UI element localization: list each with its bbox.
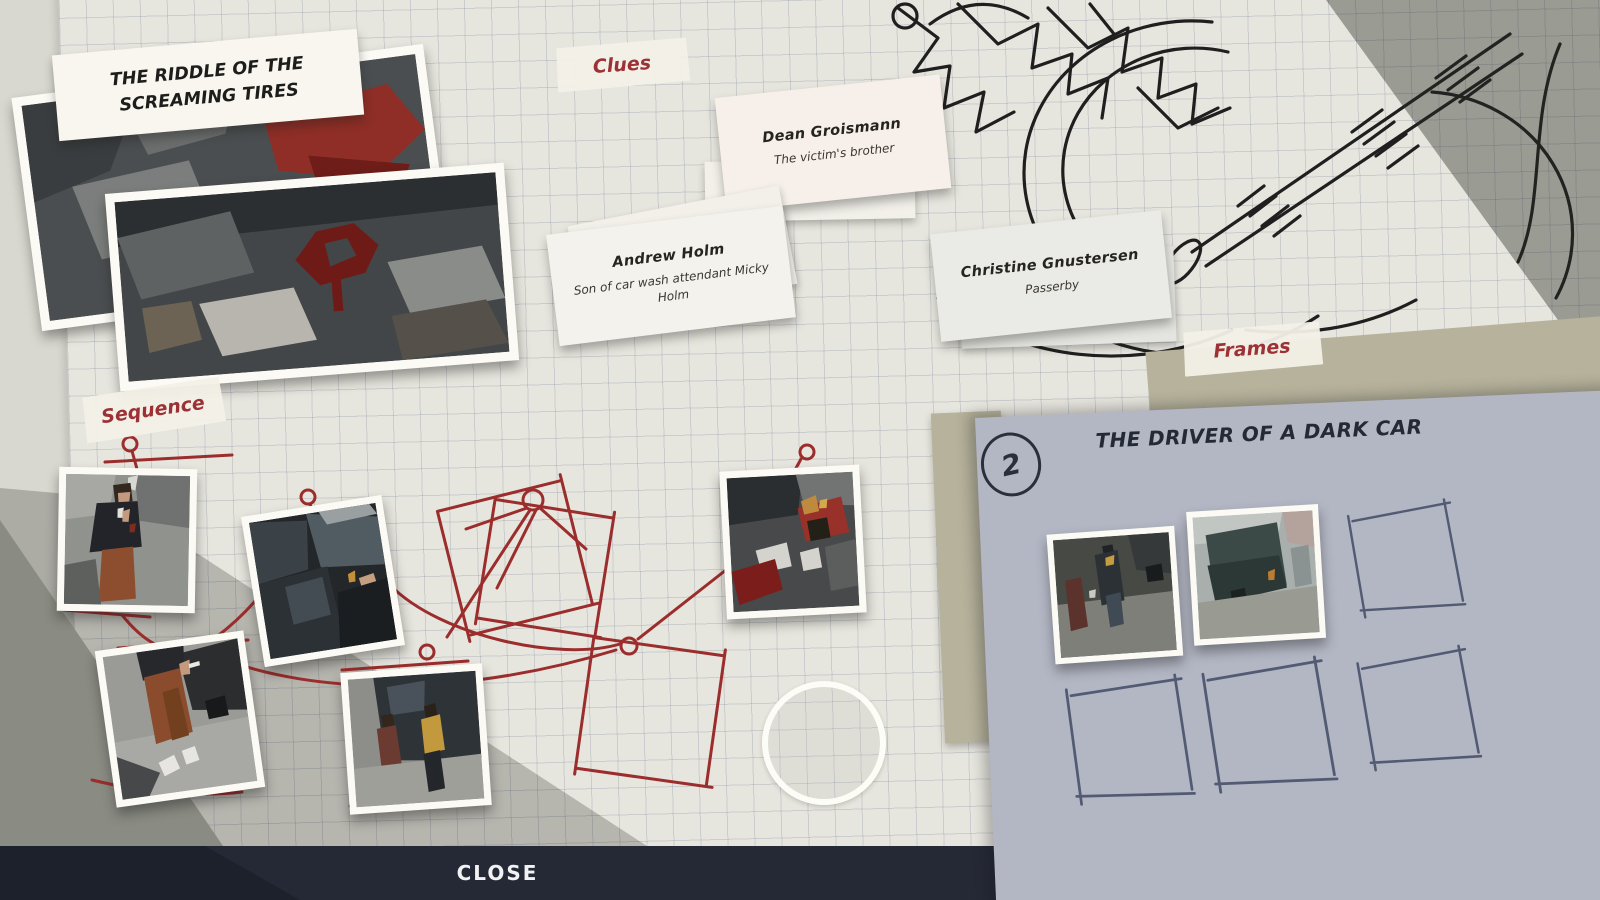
frame-photo-dark-van[interactable]: [1186, 504, 1326, 646]
case-title: THE RIDDLE OF THE SCREAMING TIRES: [53, 46, 362, 125]
sequence-photo-van-people[interactable]: [340, 663, 492, 815]
frames-panel: 2 THE DRIVER OF A DARK CAR: [975, 387, 1600, 900]
frame-empty-slot-2[interactable]: [1061, 670, 1197, 809]
sequence-photo-4-art: [348, 671, 485, 808]
photo-evidence-mark-art: [115, 172, 510, 381]
sequence-photo-5-art: [727, 472, 860, 612]
clue-card-role: Passerby: [1024, 277, 1080, 299]
clue-card-role: The victim's brother: [773, 140, 895, 169]
sequence-photo-legs[interactable]: [95, 630, 266, 807]
sequence-photo-man-smoking[interactable]: [57, 467, 197, 613]
frame-empty-slot-1[interactable]: [1343, 493, 1468, 623]
frame-number-badge: 2: [975, 427, 1047, 502]
sequence-photo-1-art: [64, 474, 190, 606]
sequence-photo-3-art: [103, 638, 258, 800]
frame-empty-slot-3[interactable]: [1198, 652, 1340, 798]
frame-photo-1-art: [1053, 532, 1177, 658]
frames-panel-title: THE DRIVER OF A DARK CAR: [1094, 414, 1425, 452]
clues-label-text: Clues: [592, 52, 652, 78]
clue-card-role: Son of car wash attendant Micky Holm: [568, 259, 776, 316]
clue-card-name: Christine Gnustersen: [960, 247, 1139, 282]
evidence-board: THE RIDDLE OF THE SCREAMING TIRES Clues …: [0, 0, 1600, 900]
sequence-label-text: Sequence: [100, 392, 206, 428]
frames-label-text: Frames: [1213, 335, 1291, 362]
close-button-label: CLOSE: [457, 861, 539, 885]
frame-photo-street-people[interactable]: [1046, 526, 1183, 665]
frame-empty-slot-4[interactable]: [1353, 641, 1484, 776]
sequence-photo-2-art: [249, 503, 397, 659]
sequence-photo-red-car[interactable]: [719, 464, 867, 619]
sequence-photo-car-interior[interactable]: [241, 495, 405, 667]
evidence-circle-slot[interactable]: [762, 681, 886, 805]
frame-number: 2: [998, 446, 1024, 482]
frame-photo-2-art: [1192, 510, 1319, 639]
close-button[interactable]: CLOSE: [0, 846, 995, 900]
photo-evidence-mark[interactable]: [105, 163, 519, 392]
